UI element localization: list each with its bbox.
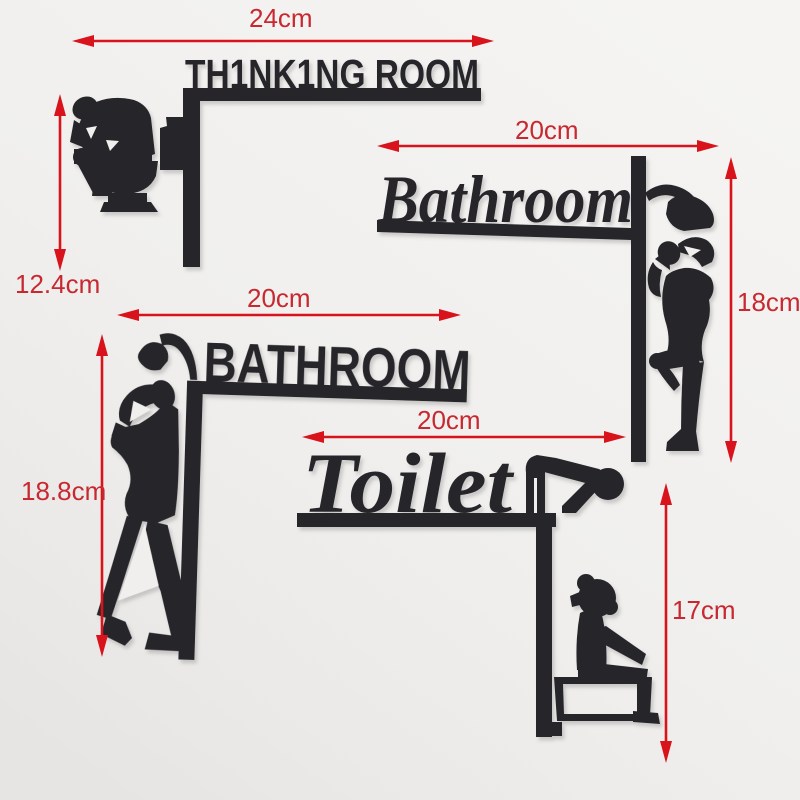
svg-text:20cm: 20cm: [417, 405, 481, 435]
svg-text:17cm: 17cm: [672, 595, 736, 625]
svg-text:24cm: 24cm: [249, 3, 313, 33]
svg-text:18cm: 18cm: [737, 287, 800, 317]
svg-text:20cm: 20cm: [247, 283, 311, 313]
svg-text:20cm: 20cm: [515, 115, 579, 145]
svg-text:18.8cm: 18.8cm: [21, 476, 106, 506]
svg-text:12.4cm: 12.4cm: [15, 269, 100, 299]
